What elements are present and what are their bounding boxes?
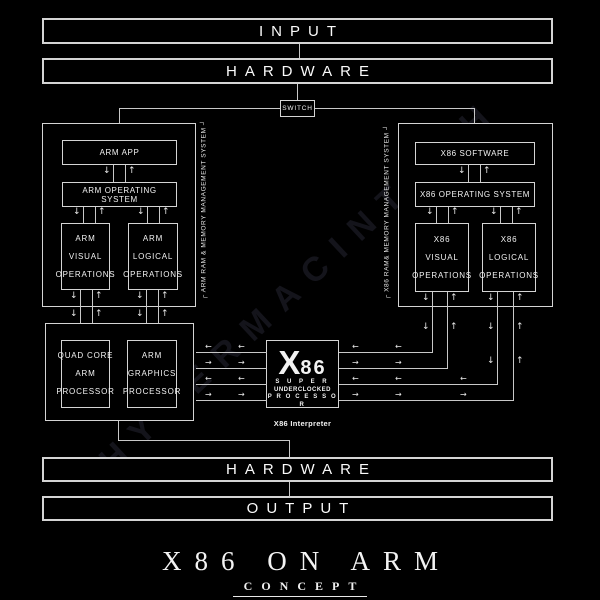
output-label: OUTPUT	[247, 500, 357, 517]
interpreter-x: X	[278, 346, 300, 379]
x86-os-label: X86 OPERATING SYSTEM	[420, 190, 530, 199]
interpreter-86: 86	[300, 358, 326, 378]
up-arrow-icon: ↑	[95, 292, 103, 301]
down-arrow-icon: ↓	[103, 167, 111, 176]
down-arrow-icon: ↓	[426, 208, 434, 217]
switch-box: SWITCH	[280, 100, 315, 117]
bus-line	[339, 400, 514, 401]
x86-interpreter-box: X86 S U P E R UNDERCLOCKED P R O C E S S…	[266, 340, 339, 408]
connector-line	[289, 440, 290, 457]
connector-line	[315, 108, 474, 109]
connector-line	[92, 290, 93, 323]
down-arrow-icon: ↓	[490, 208, 498, 217]
right-arrow-icon: →	[352, 391, 359, 399]
x86-software-box: X86 SOFTWARE	[415, 142, 535, 165]
bus-line	[196, 352, 267, 353]
output-box: OUTPUT	[42, 496, 553, 521]
hardware-bottom-box: HARDWARE	[42, 457, 553, 482]
right-arrow-icon: →	[352, 359, 359, 367]
interpreter-badge: X86 Interpreter	[274, 419, 331, 428]
connector-line	[299, 44, 300, 58]
interpreter-underclocked-label: UNDERCLOCKED	[274, 387, 331, 395]
up-arrow-icon: ↑	[451, 208, 459, 217]
connector-line	[436, 207, 437, 223]
footer-title: X86 ON ARM	[0, 546, 600, 577]
arm-graphics-processor-label: ARM GRAPHICS PROCESSOR	[123, 347, 181, 401]
up-arrow-icon: ↑	[516, 323, 524, 332]
up-arrow-icon: ↑	[161, 292, 169, 301]
right-arrow-icon: →	[205, 391, 212, 399]
up-arrow-icon: ↑	[95, 310, 103, 319]
connector-line	[468, 165, 469, 182]
connector-line	[497, 292, 498, 384]
left-arrow-icon: ←	[395, 375, 402, 383]
connector-line	[119, 108, 280, 109]
right-arrow-icon: →	[238, 391, 245, 399]
up-arrow-icon: ↑	[450, 294, 458, 303]
interpreter-processor-label: P R O C E S S O R	[267, 394, 338, 409]
connector-line	[297, 84, 298, 100]
up-arrow-icon: ↑	[162, 208, 170, 217]
left-arrow-icon: ←	[460, 375, 467, 383]
arm-os-label: ARM OPERATING SYSTEM	[63, 186, 176, 204]
arm-app-box: ARM APP	[62, 140, 177, 165]
left-arrow-icon: ←	[238, 343, 245, 351]
bus-line	[196, 400, 267, 401]
connector-line	[159, 207, 160, 223]
down-arrow-icon: ↓	[73, 208, 81, 217]
left-arrow-icon: ←	[352, 375, 359, 383]
bus-line	[339, 384, 498, 385]
arm-visual-operations-label: ARM VISUAL OPERATIONS	[56, 230, 116, 284]
arm-ram-label: ┌ ARM RAM & MEMORY MANAGEMENT SYSTEM ┘	[201, 130, 208, 300]
connector-line	[447, 292, 448, 368]
quad-core-arm-processor-box: QUAD CORE ARM PROCESSOR	[61, 340, 110, 408]
arm-logical-operations-label: ARM LOGICAL OPERATIONS	[123, 230, 183, 284]
x86-os-box: X86 OPERATING SYSTEM	[415, 182, 535, 207]
bus-line	[339, 352, 433, 353]
connector-line	[500, 207, 501, 223]
quad-core-arm-processor-label: QUAD CORE ARM PROCESSOR	[56, 347, 114, 401]
right-arrow-icon: →	[460, 391, 467, 399]
up-arrow-icon: ↑	[128, 167, 136, 176]
connector-line	[95, 207, 96, 223]
down-arrow-icon: ↓	[458, 167, 466, 176]
bus-line	[339, 368, 448, 369]
down-arrow-icon: ↓	[70, 310, 78, 319]
connector-line	[448, 207, 449, 223]
arm-visual-operations-box: ARM VISUAL OPERATIONS	[61, 223, 110, 290]
x86-software-label: X86 SOFTWARE	[441, 149, 510, 158]
footer-subtitle-wrap: CONCEPT	[0, 577, 600, 597]
left-arrow-icon: ←	[205, 343, 212, 351]
right-arrow-icon: →	[238, 359, 245, 367]
down-arrow-icon: ↓	[487, 357, 495, 366]
connector-line	[147, 207, 148, 223]
connector-line	[118, 421, 119, 440]
connector-line	[480, 165, 481, 182]
input-box: INPUT	[42, 18, 553, 44]
x86-logical-operations-box: X86 LOGICAL OPERATIONS	[482, 223, 536, 292]
left-arrow-icon: ←	[238, 375, 245, 383]
connector-line	[158, 290, 159, 323]
connector-line	[432, 292, 433, 352]
connector-line	[512, 207, 513, 223]
connector-line	[513, 292, 514, 400]
arm-graphics-processor-box: ARM GRAPHICS PROCESSOR	[127, 340, 177, 408]
connector-line	[83, 207, 84, 223]
down-arrow-icon: ↓	[70, 292, 78, 301]
down-arrow-icon: ↓	[136, 310, 144, 319]
up-arrow-icon: ↑	[516, 357, 524, 366]
connector-line	[118, 440, 289, 441]
connector-line	[80, 290, 81, 323]
left-arrow-icon: ←	[352, 343, 359, 351]
connector-line	[146, 290, 147, 323]
x86-visual-operations-box: X86 VISUAL OPERATIONS	[415, 223, 469, 292]
down-arrow-icon: ↓	[487, 323, 495, 332]
up-arrow-icon: ↑	[516, 294, 524, 303]
switch-label: SWITCH	[282, 105, 312, 112]
x86-visual-operations-label: X86 VISUAL OPERATIONS	[412, 231, 472, 285]
arm-app-label: ARM APP	[100, 148, 140, 157]
right-arrow-icon: →	[205, 359, 212, 367]
left-arrow-icon: ←	[395, 343, 402, 351]
down-arrow-icon: ↓	[422, 294, 430, 303]
hardware-top-box: HARDWARE	[42, 58, 553, 84]
bus-line	[196, 368, 267, 369]
up-arrow-icon: ↑	[450, 323, 458, 332]
bus-line	[196, 384, 267, 385]
left-arrow-icon: ←	[205, 375, 212, 383]
connector-line	[113, 165, 114, 182]
arm-logical-operations-box: ARM LOGICAL OPERATIONS	[128, 223, 178, 290]
down-arrow-icon: ↓	[136, 292, 144, 301]
right-arrow-icon: →	[395, 391, 402, 399]
right-arrow-icon: →	[395, 359, 402, 367]
hardware-top-label: HARDWARE	[226, 63, 377, 80]
down-arrow-icon: ↓	[487, 294, 495, 303]
down-arrow-icon: ↓	[422, 323, 430, 332]
footer-subtitle: CONCEPT	[233, 579, 368, 597]
up-arrow-icon: ↑	[515, 208, 523, 217]
interpreter-title: X86	[278, 346, 326, 379]
up-arrow-icon: ↑	[98, 208, 106, 217]
interpreter-super-label: S U P E R	[275, 379, 329, 387]
x86-logical-operations-label: X86 LOGICAL OPERATIONS	[479, 231, 539, 285]
connector-line	[289, 482, 290, 496]
connector-line	[125, 165, 126, 182]
arm-os-box: ARM OPERATING SYSTEM	[62, 182, 177, 207]
hardware-bottom-label: HARDWARE	[226, 461, 377, 478]
down-arrow-icon: ↓	[137, 208, 145, 217]
up-arrow-icon: ↑	[483, 167, 491, 176]
x86-on-arm-diagram: HYPERMACINTOSH INPUT HARDWARE SWITCH ARM…	[0, 0, 600, 600]
up-arrow-icon: ↑	[161, 310, 169, 319]
input-label: INPUT	[259, 23, 344, 40]
x86-ram-label: ┌ X86 RAM& MEMORY MANAGEMENT SYSTEM ┘	[384, 130, 391, 300]
